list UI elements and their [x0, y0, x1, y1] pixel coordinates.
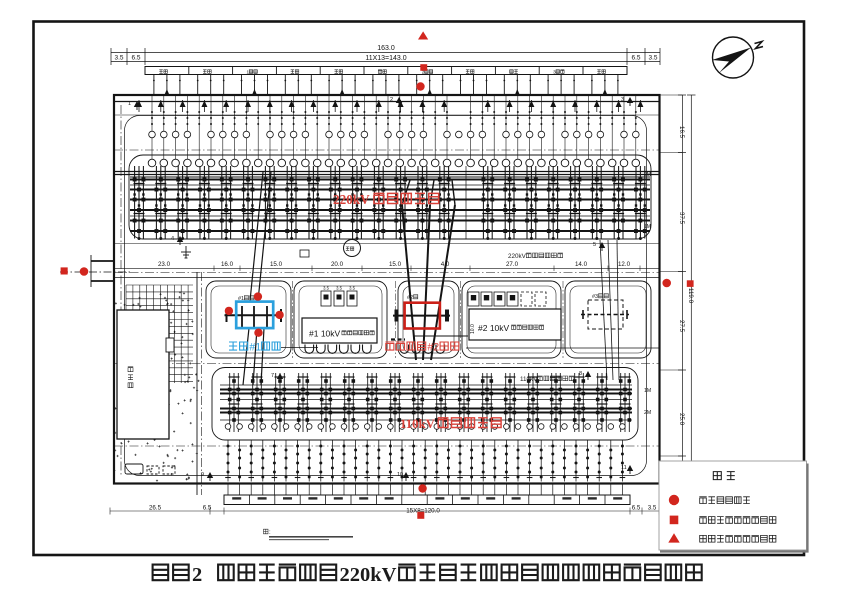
- svg-text:15.0: 15.0: [389, 261, 402, 268]
- svg-text:119.0: 119.0: [687, 288, 694, 304]
- svg-text:220kV: 220kV: [333, 192, 370, 207]
- svg-text:220kV: 220kV: [340, 564, 397, 586]
- svg-text:16.5: 16.5: [678, 126, 685, 139]
- svg-text:15.0: 15.0: [270, 261, 283, 268]
- svg-text:3: 3: [621, 97, 624, 103]
- svg-text:220kV: 220kV: [508, 253, 527, 260]
- svg-text:2M: 2M: [644, 410, 651, 416]
- svg-text:25.0: 25.0: [678, 413, 685, 426]
- svg-text:23.0: 23.0: [158, 261, 171, 268]
- svg-text:6.5: 6.5: [131, 55, 140, 62]
- svg-text:10.0: 10.0: [470, 324, 476, 334]
- svg-text:6.5: 6.5: [631, 55, 640, 62]
- svg-text:12.0: 12.0: [618, 261, 631, 268]
- svg-text:20.0: 20.0: [331, 261, 344, 268]
- svg-text:3.5: 3.5: [336, 286, 342, 291]
- svg-text:1M: 1M: [644, 388, 651, 394]
- svg-text:110kV: 110kV: [400, 417, 436, 431]
- svg-text:163.0: 163.0: [377, 45, 395, 52]
- svg-text:#2 10kV: #2 10kV: [478, 323, 510, 333]
- svg-text:3.5: 3.5: [349, 286, 355, 291]
- svg-text:#3: #3: [592, 294, 598, 300]
- svg-text:3: 3: [553, 70, 556, 75]
- svg-text:4: 4: [171, 236, 174, 242]
- svg-text:3.5: 3.5: [648, 505, 657, 512]
- svg-text:27.0: 27.0: [506, 261, 519, 268]
- svg-text:11X13=143.0: 11X13=143.0: [365, 55, 406, 62]
- svg-text:5: 5: [593, 242, 596, 248]
- svg-text:37.5: 37.5: [678, 212, 685, 225]
- svg-text:8: 8: [579, 371, 582, 377]
- svg-text:27.5: 27.5: [678, 320, 685, 333]
- svg-text:3.5: 3.5: [648, 55, 657, 62]
- svg-text:#2: #2: [407, 295, 413, 301]
- svg-text:3.5: 3.5: [323, 286, 329, 291]
- svg-text:2: 2: [192, 564, 202, 586]
- svg-text:1: 1: [128, 101, 131, 107]
- svg-text:6.5: 6.5: [632, 505, 641, 512]
- svg-text:3.5: 3.5: [114, 55, 123, 62]
- svg-text:7: 7: [271, 373, 274, 379]
- svg-text:11: 11: [621, 465, 627, 471]
- svg-text:16.0: 16.0: [221, 261, 234, 268]
- svg-text:14.0: 14.0: [575, 261, 588, 268]
- svg-text:26.5: 26.5: [149, 505, 162, 512]
- svg-text:#1 10kV: #1 10kV: [309, 329, 341, 339]
- svg-text:10: 10: [397, 472, 403, 478]
- svg-text:#2: #2: [427, 342, 439, 354]
- svg-text:6.5: 6.5: [203, 505, 212, 512]
- svg-text:#1: #1: [249, 342, 261, 354]
- svg-text:2: 2: [390, 97, 393, 103]
